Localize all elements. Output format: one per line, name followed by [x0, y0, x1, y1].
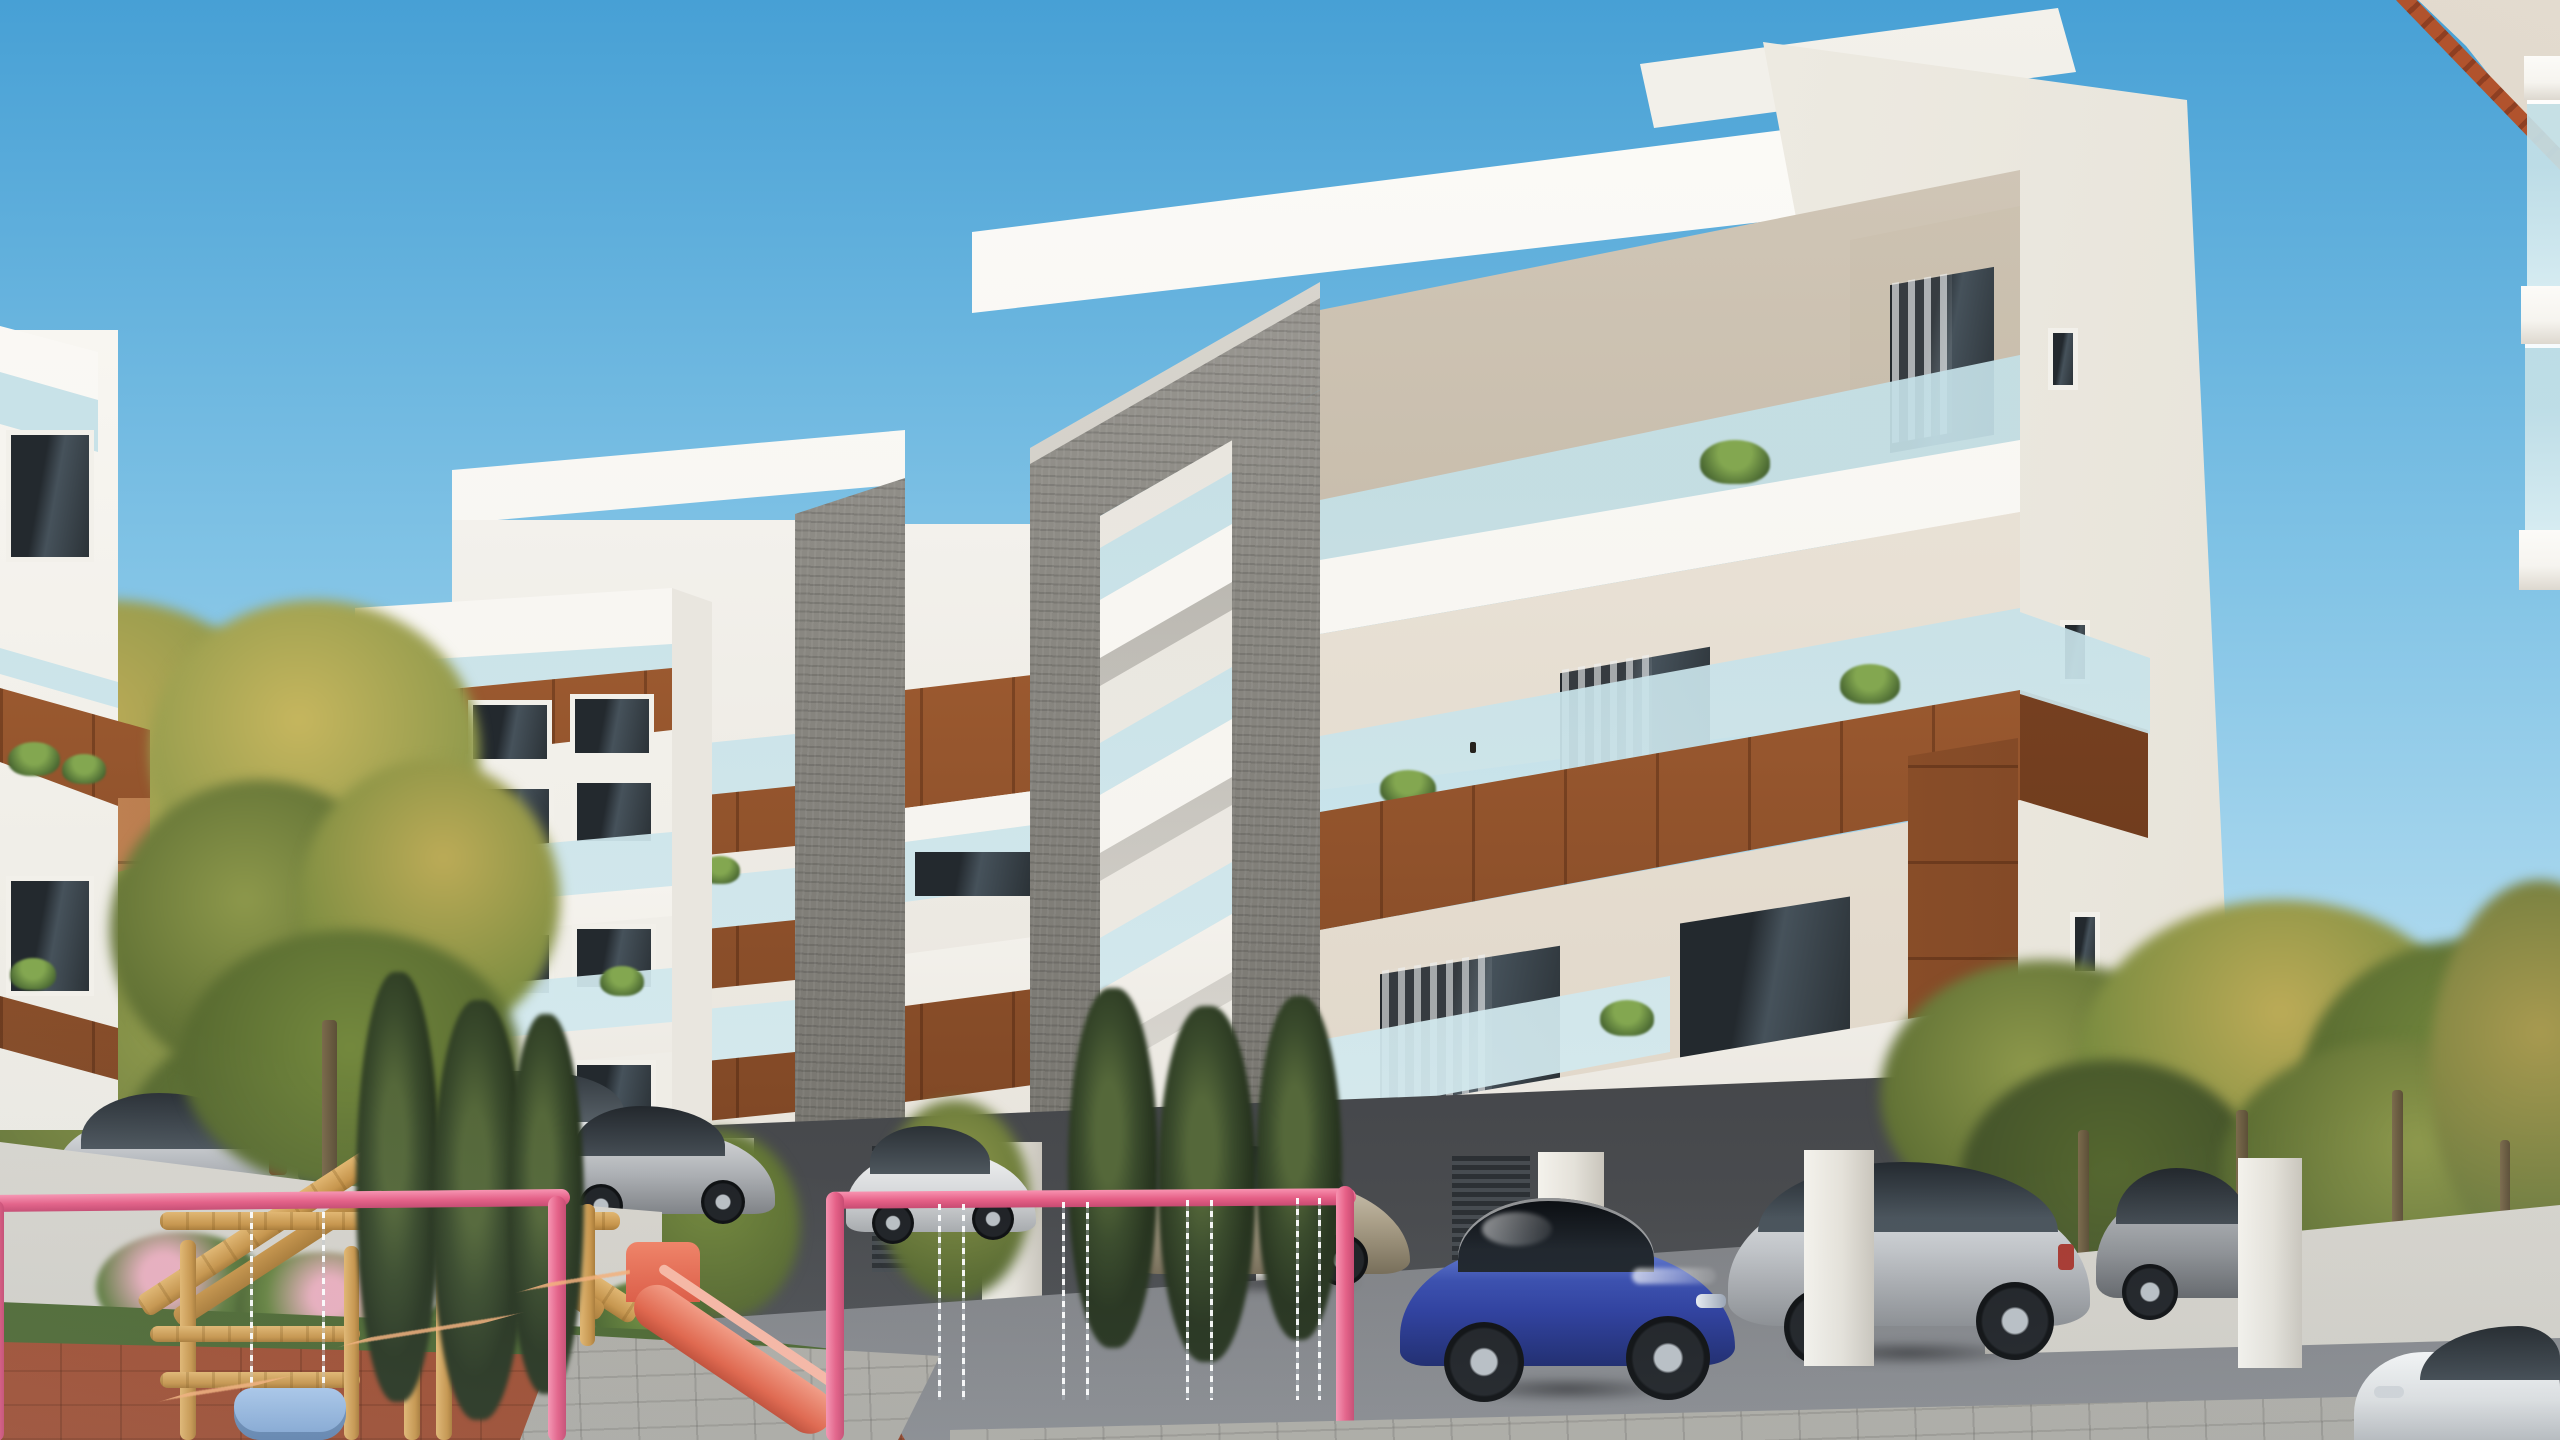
- white-car-foreground: [2354, 1326, 2560, 1440]
- silver-suv: [1728, 1148, 2090, 1373]
- poplar-tree: [1068, 988, 1158, 1348]
- neighbor-balcony-glass: [2525, 344, 2560, 530]
- poplar-tree: [1256, 996, 1342, 1340]
- neighbor-balcony-slab: [2521, 286, 2560, 344]
- neighbor-balcony-slab: [2524, 56, 2560, 100]
- neighbor-balcony-slab: [2519, 530, 2560, 590]
- far-left-window: [6, 430, 94, 562]
- window: [468, 700, 552, 764]
- poplar-tree: [1158, 1006, 1256, 1362]
- white-coupe: [846, 1118, 1036, 1248]
- neighbor-balcony-glass: [2527, 100, 2560, 286]
- window: [915, 852, 1030, 896]
- blue-sedan: [1400, 1198, 1735, 1408]
- window: [570, 694, 654, 758]
- side-window: [2048, 328, 2078, 390]
- blue-baby-swing-seat: [234, 1388, 346, 1440]
- parking-pier-front: [1804, 1150, 1874, 1366]
- architectural-render-scene: [0, 0, 2560, 1440]
- parking-pier-front: [2238, 1158, 2302, 1368]
